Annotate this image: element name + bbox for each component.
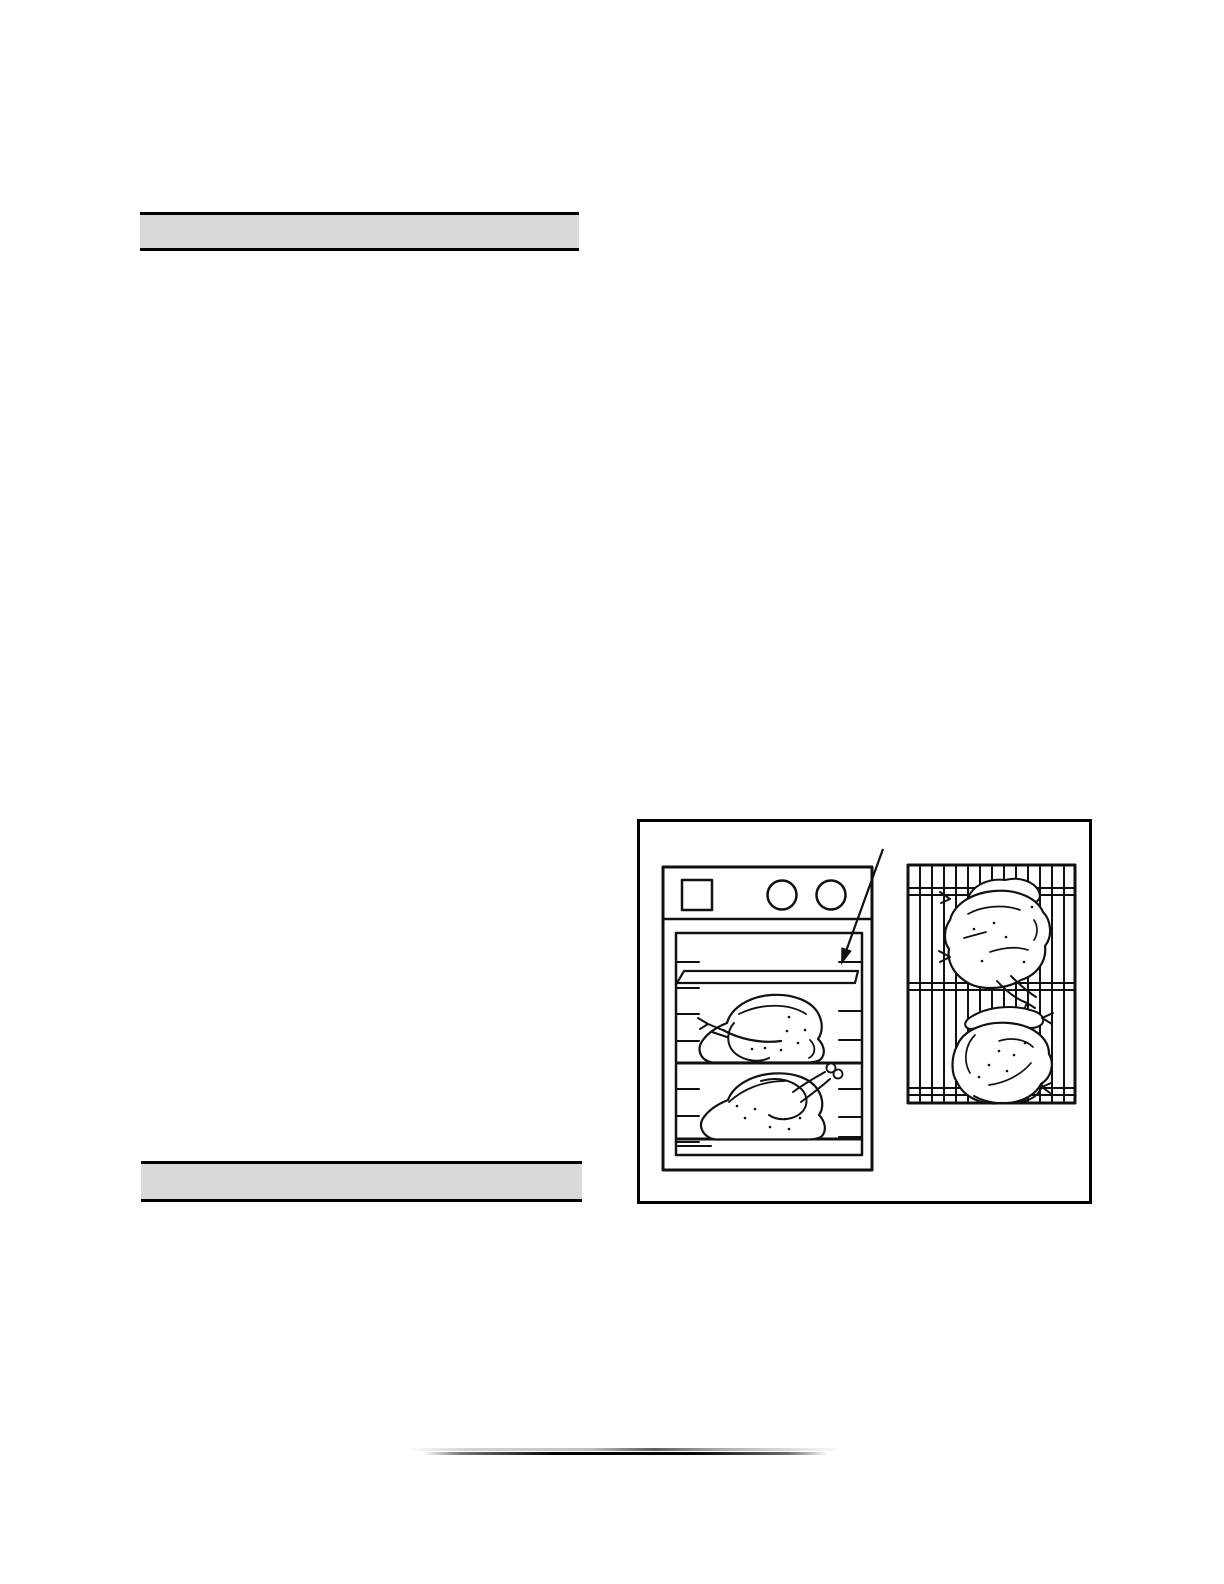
grill-rack-illustration: [908, 865, 1075, 1104]
roast-chicken-rack-lower: [953, 1007, 1054, 1104]
cooking-illustration-figure: [637, 819, 1092, 1204]
divider-line-upper: [406, 1448, 842, 1451]
upper-oven-shelf: [677, 971, 858, 983]
divider-line-lower: [424, 1452, 828, 1455]
manual-page: [0, 0, 1224, 1584]
section-heading-bar-bottom: [141, 1161, 582, 1202]
footer-divider: [406, 1448, 842, 1455]
section-heading-bar-top: [140, 212, 579, 251]
oven-and-rack-drawing: [637, 819, 1092, 1204]
